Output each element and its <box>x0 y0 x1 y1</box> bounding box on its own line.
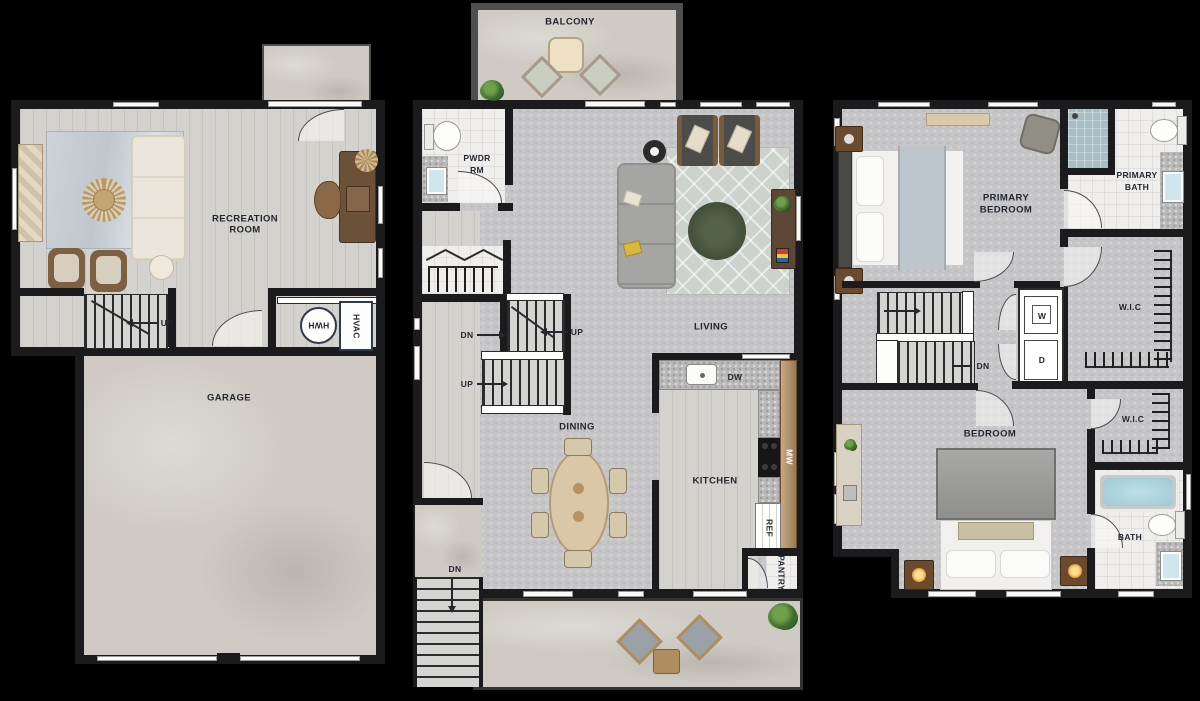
entry-door-opening <box>268 101 362 107</box>
up-arrow-head <box>501 380 508 388</box>
faucet <box>700 373 705 378</box>
wall <box>217 653 240 664</box>
stairs-down-exterior <box>417 577 479 687</box>
sunburst-decor <box>82 178 126 222</box>
wall <box>842 383 978 390</box>
wall <box>1014 281 1060 288</box>
stairs-lower-flight <box>897 341 975 386</box>
label-pwdr-2: RM <box>470 166 484 175</box>
stair-landing <box>963 292 973 334</box>
label-garage: GARAGE <box>207 393 251 403</box>
toilet-tank <box>1177 116 1187 145</box>
side-table <box>149 255 174 280</box>
bed-throw <box>958 522 1034 540</box>
armchair <box>677 115 718 166</box>
pillow <box>946 550 996 578</box>
window <box>660 102 676 107</box>
wall <box>652 480 659 589</box>
window <box>414 318 420 330</box>
burner <box>762 443 768 449</box>
window <box>1152 102 1176 107</box>
stair-landing <box>877 341 897 384</box>
wall <box>505 109 513 185</box>
desk-item <box>346 186 370 212</box>
label-kitchen: KITCHEN <box>692 476 737 486</box>
label-wic-upper: W.I.C <box>1119 303 1141 312</box>
canopy-bed-top <box>936 448 1056 520</box>
up-arrow-line <box>477 383 503 385</box>
headboard <box>838 148 852 268</box>
dn-arrow-line <box>451 578 453 606</box>
wall <box>422 203 460 211</box>
round-decor <box>355 149 378 172</box>
burner <box>762 464 768 470</box>
bed-runner <box>898 146 946 270</box>
stair-landing <box>482 406 563 413</box>
sunburst-center <box>93 189 115 211</box>
label-primary-bedroom-2: BEDROOM <box>980 205 1032 215</box>
label-dw: DW <box>728 373 743 382</box>
dn-leader-line <box>952 365 972 367</box>
kitchen-counter <box>659 360 780 390</box>
lamp <box>1068 564 1082 578</box>
window <box>12 168 17 230</box>
lamp <box>912 568 926 582</box>
patio-table <box>653 649 680 674</box>
window <box>1186 474 1191 510</box>
wall <box>500 294 507 359</box>
chair-cushion <box>96 256 121 284</box>
console-table <box>18 144 43 242</box>
label-recreation-room-1: RECREATION <box>212 214 278 224</box>
notch <box>833 557 891 598</box>
shower-head <box>1072 113 1078 119</box>
up-arrow-line <box>132 322 158 324</box>
plant <box>769 603 797 629</box>
stair-arrow-head <box>914 307 921 315</box>
label-dn: DN <box>461 331 474 340</box>
kitchen-counter <box>758 477 780 503</box>
label-pwdr-1: PWDR <box>463 154 490 163</box>
toilet <box>1150 119 1178 142</box>
window <box>414 346 420 380</box>
label-up: UP <box>161 319 173 328</box>
nightstand <box>1060 556 1090 586</box>
wall-shelf <box>926 113 990 126</box>
stair-landing <box>482 352 563 359</box>
window <box>1006 591 1061 597</box>
dn-arrow-line <box>477 334 501 336</box>
dining-chair <box>531 512 549 538</box>
window <box>378 186 383 224</box>
sofa <box>131 135 186 261</box>
kitchen-counter <box>758 390 780 438</box>
kitchen-pass <box>742 354 790 359</box>
pillow <box>1000 550 1050 578</box>
wall <box>1087 548 1095 589</box>
plant <box>845 439 856 450</box>
label-ref: REF <box>765 519 774 537</box>
window <box>1118 591 1154 597</box>
nightstand-decor <box>844 134 854 144</box>
dn-arrow-head <box>499 331 506 339</box>
pillow <box>856 212 884 262</box>
window <box>756 102 790 107</box>
up-arrow-head <box>126 319 133 327</box>
wall <box>1087 429 1095 462</box>
dining-chair <box>609 468 627 494</box>
dining-chair <box>564 438 592 456</box>
dining-table <box>549 451 609 555</box>
label-up: UP <box>461 380 473 389</box>
label-bedroom: BEDROOM <box>964 429 1016 439</box>
balcony-door <box>585 101 645 107</box>
swivel-chair <box>48 248 85 290</box>
centerpiece <box>573 511 584 522</box>
tub-water <box>1103 478 1173 506</box>
label-dryer: D <box>1039 356 1045 365</box>
label-balcony: BALCONY <box>545 17 595 27</box>
wall <box>1060 237 1068 247</box>
window <box>988 102 1038 107</box>
hvac-unit: HVAC <box>339 301 373 351</box>
window <box>878 102 930 107</box>
hvac-label: HVAC <box>352 314 361 339</box>
label-wic-lower: W.I.C <box>1122 415 1144 424</box>
hwh-label: HWH <box>308 321 329 330</box>
hangers <box>1085 352 1169 368</box>
window <box>618 591 644 597</box>
label-pantry: PANTRY <box>777 555 786 591</box>
window <box>378 248 383 278</box>
window <box>928 591 976 597</box>
wall <box>1060 229 1183 237</box>
wall <box>422 294 511 302</box>
label-living: LIVING <box>694 322 728 332</box>
wall <box>652 353 659 413</box>
wall <box>479 577 483 687</box>
wall <box>413 577 417 687</box>
round-rug <box>688 202 746 260</box>
wall <box>20 288 84 296</box>
desk-item <box>843 485 857 501</box>
garage-door <box>97 656 217 661</box>
hangers <box>428 268 498 292</box>
shower <box>1068 109 1110 169</box>
wall <box>498 203 513 211</box>
wall <box>891 553 899 598</box>
toilet <box>1148 514 1176 536</box>
wall <box>503 240 511 302</box>
dining-chair <box>531 468 549 494</box>
wall <box>842 281 980 288</box>
label-bath: BATH <box>1118 533 1142 542</box>
sink <box>427 168 446 194</box>
stair-divider <box>877 334 973 341</box>
window <box>796 196 801 241</box>
label-dining: DINING <box>559 422 595 432</box>
window <box>700 102 742 107</box>
wall <box>742 548 803 556</box>
label-up: UP <box>571 328 583 337</box>
cooktop <box>758 438 780 477</box>
sink <box>1163 172 1183 202</box>
armchair <box>719 115 760 166</box>
plant <box>481 80 503 100</box>
label-dn: DN <box>977 362 990 371</box>
kitchen-sink <box>686 364 717 385</box>
wall <box>1108 109 1115 175</box>
up-arrow-head <box>540 328 547 336</box>
label-dn-exterior: DN <box>449 565 462 574</box>
hangers <box>1102 440 1158 454</box>
water-heater: HWH <box>300 307 337 344</box>
label-mw: MW <box>785 449 794 465</box>
dining-chair <box>609 512 627 538</box>
console-decor <box>776 248 789 263</box>
bathtub <box>1097 472 1179 512</box>
wall <box>1012 381 1183 389</box>
sink <box>1161 552 1181 580</box>
hangers <box>1154 250 1172 362</box>
stairs-upper-flight <box>877 292 965 336</box>
dining-chair <box>564 550 592 568</box>
swivel-chair <box>90 250 127 292</box>
label-primary-bath-2: BATH <box>1125 183 1149 192</box>
window <box>523 591 573 597</box>
sofa <box>617 163 676 289</box>
label-primary-bedroom-1: PRIMARY <box>983 193 1029 203</box>
centerpiece <box>573 483 584 494</box>
pillow <box>856 156 884 206</box>
label-primary-bath-1: PRIMARY <box>1117 171 1158 180</box>
nightstand <box>835 126 863 152</box>
garage-door <box>240 656 360 661</box>
wall <box>268 288 385 296</box>
patio-door <box>693 591 747 597</box>
wall <box>833 549 899 557</box>
wall <box>1087 470 1095 514</box>
chair-cushion <box>54 254 79 282</box>
bedroom-desk <box>836 424 862 526</box>
burner <box>771 464 777 470</box>
plant <box>775 196 790 211</box>
cup <box>650 147 659 156</box>
chair-pillow <box>685 125 710 154</box>
desk-chair <box>314 181 341 219</box>
floor-plan: HWH HVAC RECREATION ROOM UP GARAGE BALCO… <box>0 0 1200 701</box>
wall <box>1087 389 1095 399</box>
wall <box>1087 462 1183 470</box>
toilet <box>433 121 461 151</box>
nightstand <box>904 560 934 590</box>
wall <box>268 296 276 356</box>
chair-pillow <box>727 125 752 154</box>
label-washer: W <box>1038 312 1046 321</box>
up-arrow-line <box>546 331 568 333</box>
wall <box>1060 109 1068 189</box>
toilet-tank <box>1175 511 1185 539</box>
side-table <box>643 140 666 163</box>
stair-arrow-line <box>884 310 916 312</box>
wall <box>413 498 483 505</box>
wall <box>1068 168 1115 175</box>
burner <box>771 443 777 449</box>
label-recreation-room-2: ROOM <box>229 225 260 235</box>
dn-arrow-head <box>448 606 456 613</box>
window <box>113 102 159 107</box>
